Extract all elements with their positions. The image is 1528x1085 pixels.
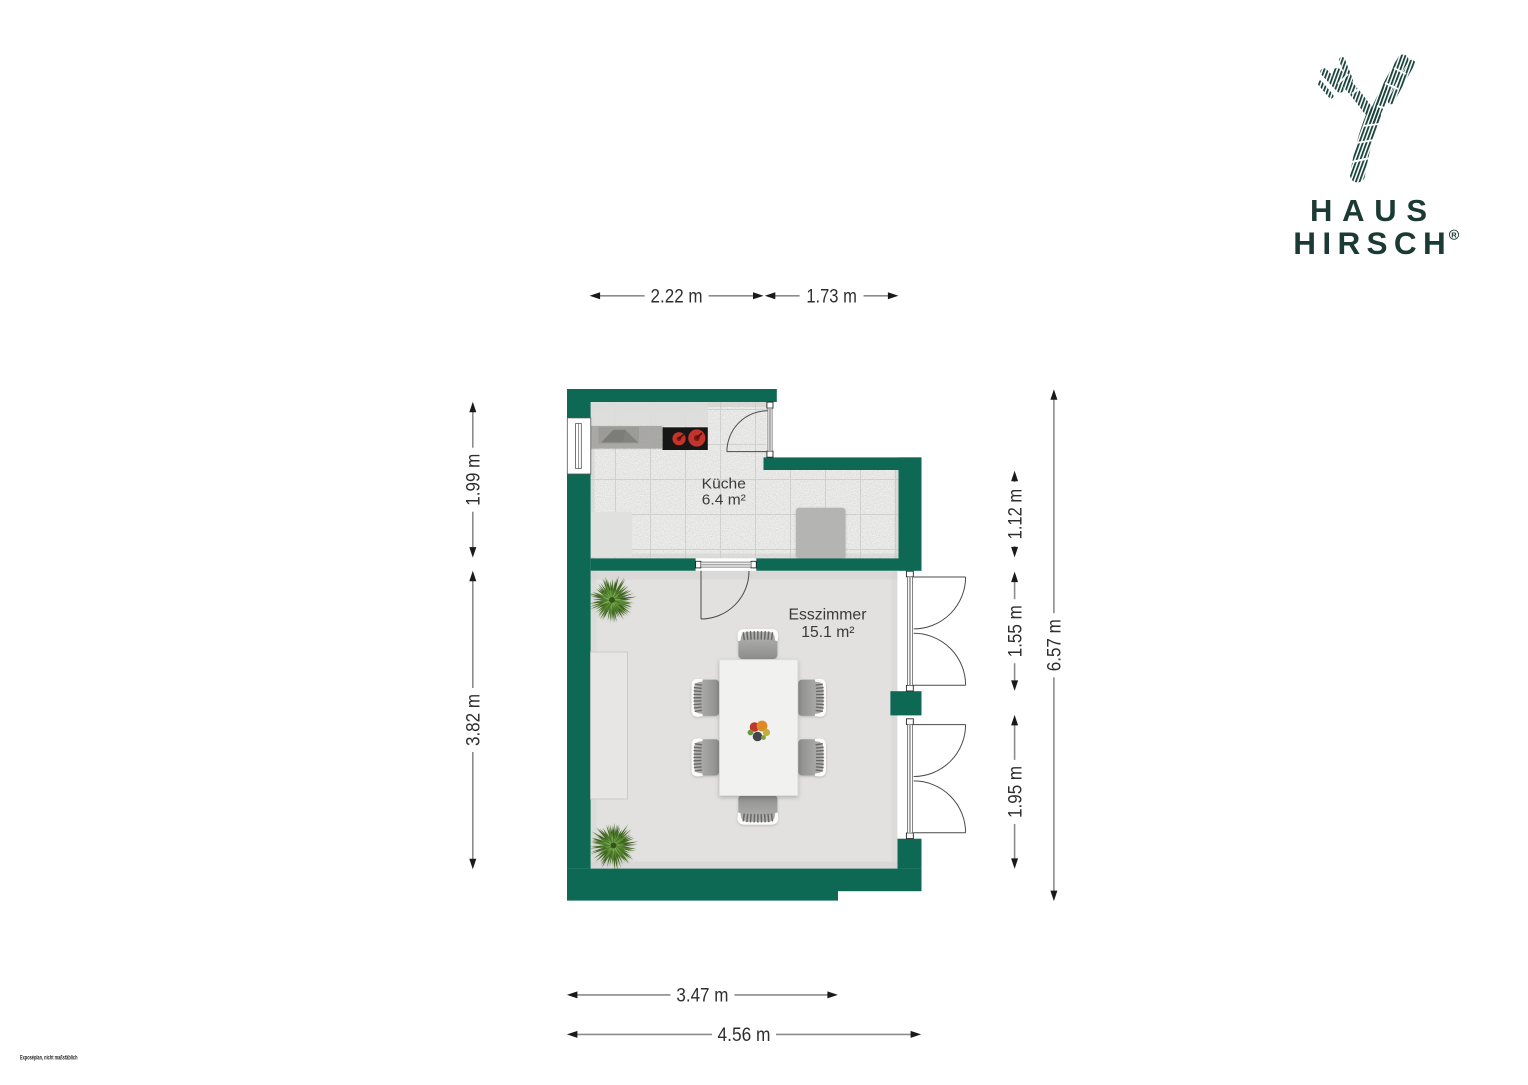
svg-text:1.99 m: 1.99 m bbox=[464, 454, 485, 506]
svg-text:Küche: Küche bbox=[702, 477, 746, 493]
svg-text:1.12 m: 1.12 m bbox=[1005, 489, 1026, 540]
svg-text:15.1 m²: 15.1 m² bbox=[801, 624, 854, 641]
svg-text:1.95 m: 1.95 m bbox=[1005, 766, 1026, 818]
svg-text:1.55 m: 1.55 m bbox=[1005, 605, 1026, 657]
svg-text:1.73 m: 1.73 m bbox=[806, 287, 857, 308]
svg-text:R: R bbox=[1451, 231, 1457, 240]
svg-text:6.4 m²: 6.4 m² bbox=[702, 493, 746, 509]
svg-text:4.56 m: 4.56 m bbox=[718, 1025, 771, 1046]
svg-text:3.82 m: 3.82 m bbox=[464, 694, 485, 746]
svg-text:2.22 m: 2.22 m bbox=[651, 287, 703, 308]
svg-text:3.47 m: 3.47 m bbox=[676, 986, 728, 1007]
svg-text:Esszimmer: Esszimmer bbox=[789, 606, 867, 623]
svg-text:6.57 m: 6.57 m bbox=[1045, 619, 1066, 671]
svg-text:Exposéplan, nicht maßstäblich: Exposéplan, nicht maßstäblich bbox=[20, 1055, 78, 1062]
